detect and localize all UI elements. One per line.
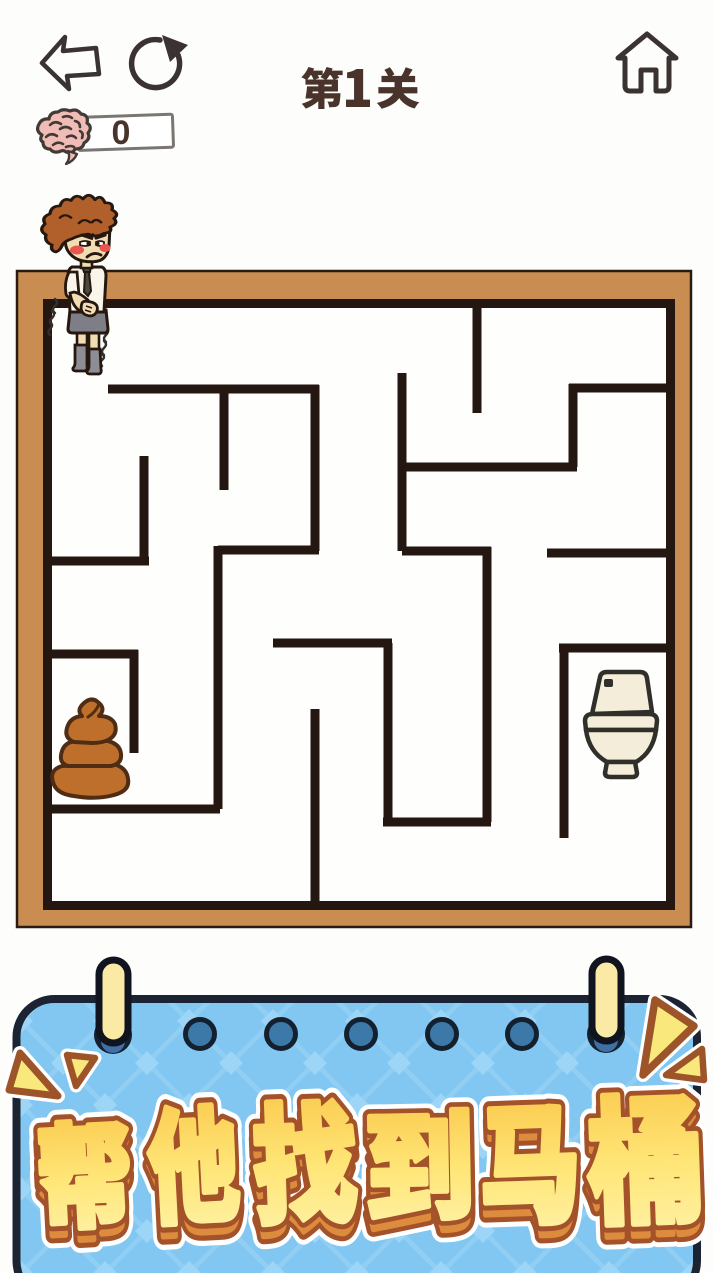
svg-text:0: 0: [112, 114, 131, 152]
